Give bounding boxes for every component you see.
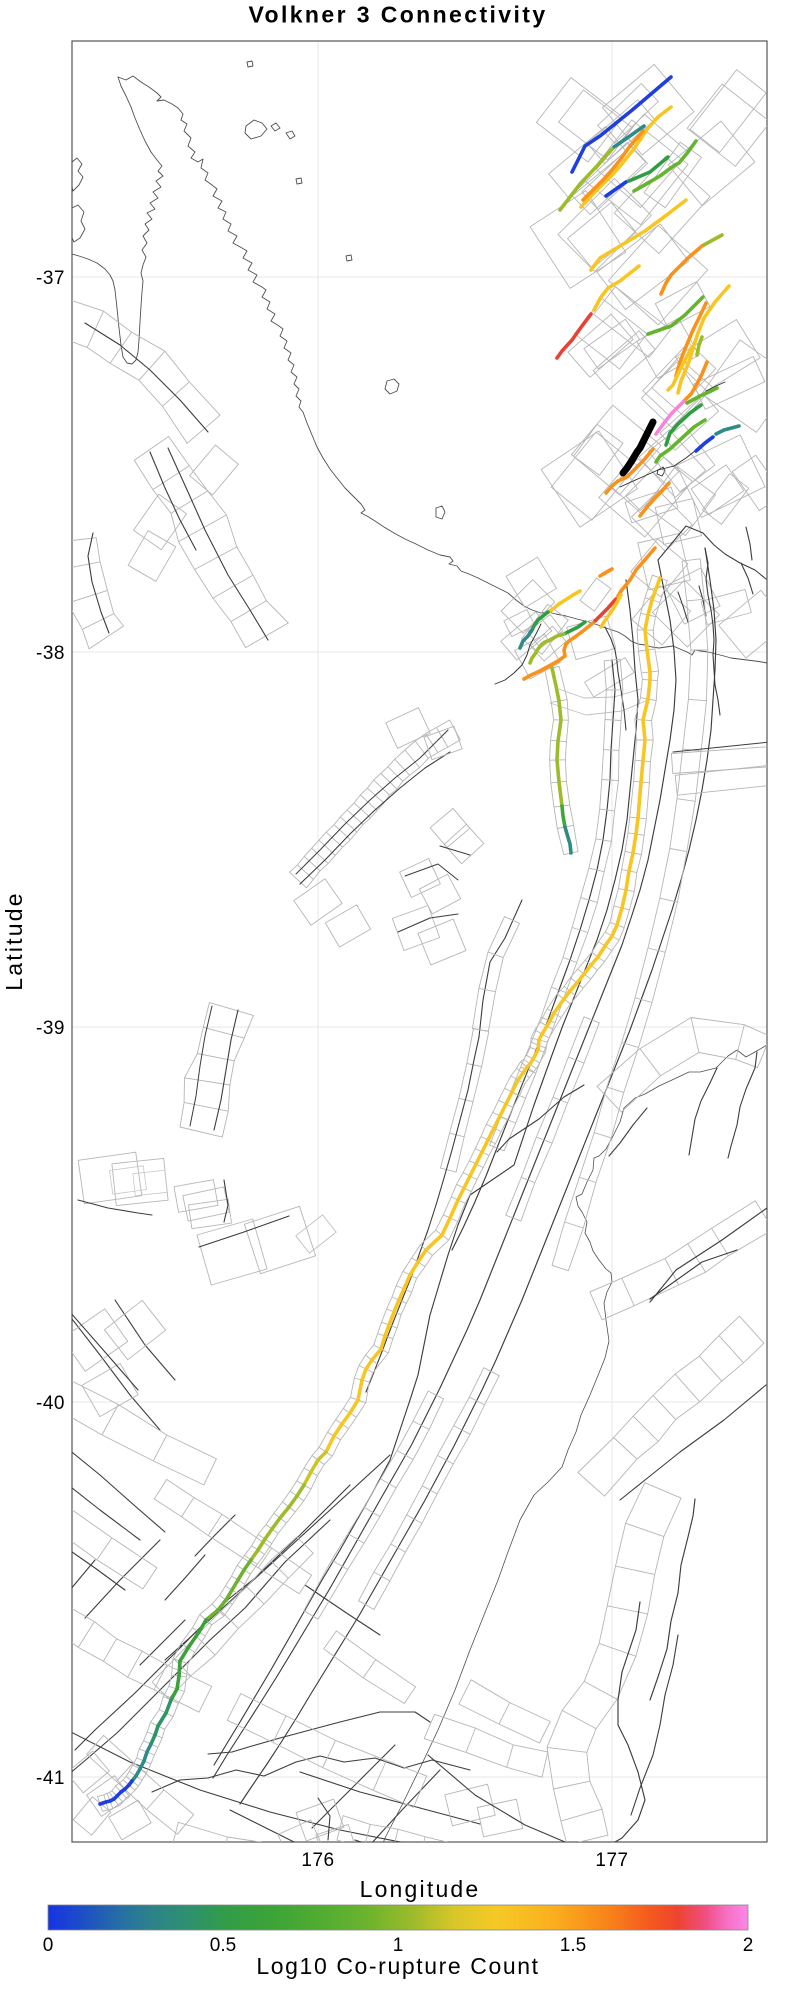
svg-text:-40: -40 <box>36 1393 65 1414</box>
svg-text:1.5: 1.5 <box>560 1935 586 1956</box>
svg-text:Latitude: Latitude <box>1 891 27 990</box>
svg-text:-37: -37 <box>36 268 65 289</box>
svg-text:177: 177 <box>595 1850 628 1871</box>
svg-text:-39: -39 <box>36 1018 65 1039</box>
svg-text:Log10 Co-rupture Count: Log10 Co-rupture Count <box>256 1953 539 1979</box>
svg-text:0: 0 <box>43 1935 54 1956</box>
svg-text:-38: -38 <box>36 643 65 664</box>
svg-text:Longitude: Longitude <box>360 1876 481 1902</box>
svg-text:-41: -41 <box>36 1768 65 1789</box>
svg-text:176: 176 <box>301 1850 334 1871</box>
svg-text:2: 2 <box>743 1935 754 1956</box>
svg-text:Volkner 3 Connectivity: Volkner 3 Connectivity <box>248 2 547 28</box>
svg-text:0.5: 0.5 <box>210 1935 236 1956</box>
